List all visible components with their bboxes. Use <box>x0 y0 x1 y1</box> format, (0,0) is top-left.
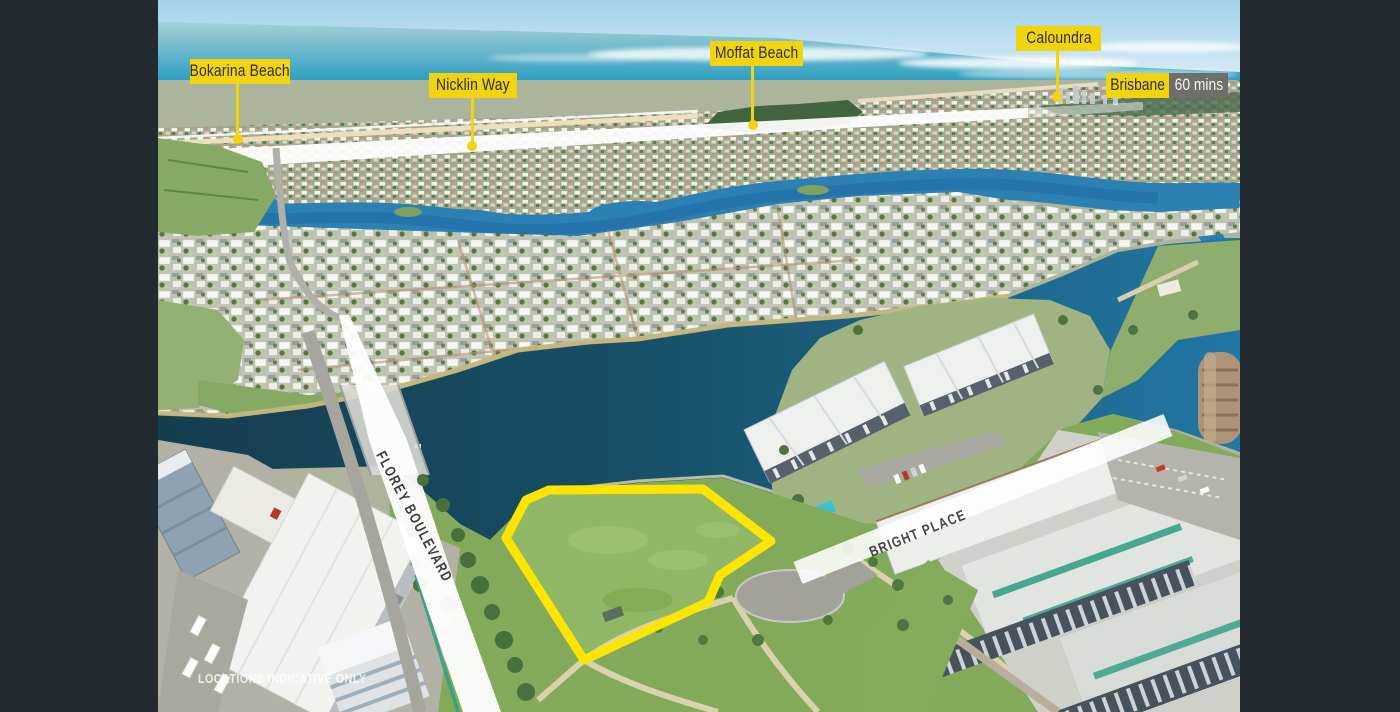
label-moffat-beach: Moffat Beach <box>710 41 803 66</box>
leader-line <box>751 66 754 122</box>
letterboxed-canvas: Bokarina Beach Nicklin Way Moffat Beach … <box>0 0 1400 712</box>
location-dot <box>1052 92 1062 102</box>
round-tower <box>1198 352 1240 444</box>
aerial-photo-svg <box>158 0 1240 712</box>
label-nicklin-way: Nicklin Way <box>429 73 517 98</box>
location-dot <box>748 120 758 130</box>
label-caloundra: Caloundra <box>1016 26 1101 51</box>
label-brisbane: Brisbane <box>1106 73 1169 98</box>
label-text: Nicklin Way <box>436 76 510 95</box>
leader-line <box>1056 50 1059 94</box>
aerial-photo <box>158 0 1240 712</box>
disclaimer-text: LOCATIONS INDICATIVE ONLY <box>198 671 366 686</box>
leader-line <box>471 97 474 143</box>
label-text: Bokarina Beach <box>190 62 290 81</box>
label-text: Moffat Beach <box>715 44 798 63</box>
label-bokarina-beach: Bokarina Beach <box>190 59 290 84</box>
label-text: Caloundra <box>1026 29 1091 48</box>
travel-time-badge: 60 mins <box>1169 73 1228 98</box>
location-dot <box>233 134 243 144</box>
label-brisbane-travel-time: Brisbane 60 mins <box>1106 73 1228 98</box>
location-dot <box>467 141 477 151</box>
leader-line <box>236 84 239 136</box>
